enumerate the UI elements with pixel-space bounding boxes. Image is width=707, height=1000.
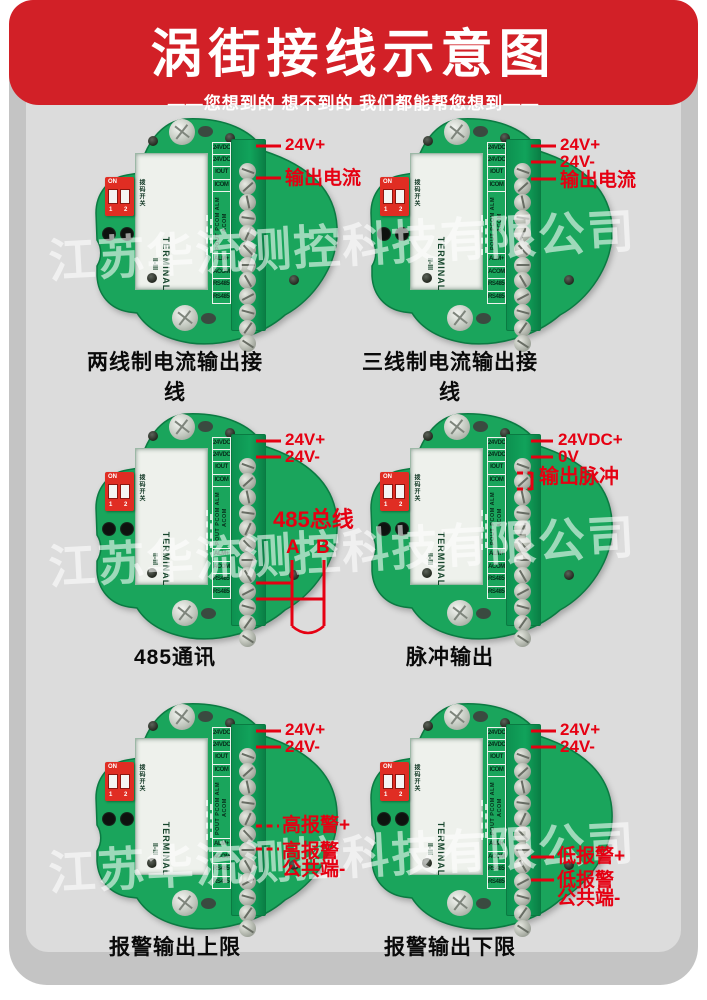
terminal-label: IOUT: [212, 167, 231, 180]
board-hole: [564, 275, 574, 285]
dip-on-label: ON: [383, 474, 392, 480]
terminal-label: ALM+: [487, 839, 506, 852]
dip-switch: ON 1 2: [380, 762, 409, 801]
solder-pad: [473, 711, 488, 722]
wire-label: A: [286, 538, 300, 557]
mounting-screw: [444, 119, 470, 145]
terminal-screw: [239, 505, 256, 522]
terminal-label: RS485+: [212, 864, 231, 877]
terminal-screw: [514, 842, 531, 859]
terminal-label: 24VDC+: [487, 437, 506, 450]
terminal-label: 24VDC+: [212, 727, 231, 740]
terminal-label-rotated: POUT PCOM ALM ACOM: [487, 777, 506, 839]
diagram-caption: 报警输出上限: [80, 931, 270, 961]
board-hole: [120, 522, 134, 536]
terminal-screw: [239, 567, 256, 584]
terminal-label: ICOM: [212, 765, 231, 778]
terminal-screw: [239, 905, 256, 922]
board-hole: [289, 275, 299, 285]
diagram-caption: 485通讯: [80, 641, 270, 671]
terminal-silkscreen: TERMINAL II-III: [149, 514, 171, 604]
dip-slider: [108, 189, 118, 204]
terminal-label: ALM+: [212, 839, 231, 852]
terminal-label-rotated: POUT PCOM ALM ACOM: [212, 192, 231, 254]
board-hole: [377, 227, 391, 241]
terminal-screw: [239, 795, 256, 812]
terminal-label: IOUT: [487, 752, 506, 765]
mounting-screw: [447, 600, 473, 626]
terminal-label: ICOM: [487, 180, 506, 193]
board-hole: [564, 570, 574, 580]
terminal-label: 24VDC-: [487, 155, 506, 168]
terminal-silkscreen: TERMINAL II-III: [149, 219, 171, 309]
solder-pad: [476, 898, 491, 909]
terminal-screw: [514, 241, 531, 258]
mounting-screw: [447, 305, 473, 331]
solder-pad: [473, 421, 488, 432]
board-hole: [289, 570, 299, 580]
terminal-screw: [239, 810, 256, 827]
terminal-screw: [239, 889, 256, 906]
dip-on-label: ON: [108, 474, 117, 480]
terminal-screw: [514, 320, 531, 337]
terminal-screw: [239, 599, 256, 616]
terminal-label: IOUT: [212, 462, 231, 475]
wire-label: 低报警+: [557, 847, 625, 866]
terminal-label-rotated: POUT PCOM ALM ACOM: [487, 487, 506, 549]
dip-slider: [120, 774, 130, 789]
terminal-label: RS485-: [487, 292, 506, 305]
page-subtitle: ——您想到的 想不到的 我们都能帮您想到——: [9, 89, 698, 114]
terminal-screw: [239, 241, 256, 258]
terminal-label: RS485+: [212, 574, 231, 587]
terminal-screw: [514, 826, 531, 843]
dip-numbers: 1 2: [109, 502, 132, 508]
wire-label: 24V+: [285, 431, 325, 448]
wire-label: 24V-: [560, 153, 595, 170]
terminal-screw: [514, 552, 531, 569]
terminal-label: ACOM: [487, 852, 506, 865]
terminal-screw: [514, 225, 531, 242]
terminal-screw: [514, 763, 531, 780]
dip-slider: [395, 189, 405, 204]
dip-switch: ON 1 2: [380, 177, 409, 216]
wire-label: 24V+: [560, 721, 600, 738]
wire-label: 输出电流: [560, 171, 636, 190]
terminal-label: 24VDC+: [212, 142, 231, 155]
terminal-label: RS485+: [487, 574, 506, 587]
diagram-caption: 脉冲输出: [355, 641, 545, 671]
terminal-screw: [514, 873, 531, 890]
terminal-label: ICOM: [212, 180, 231, 193]
terminal-screw: [514, 194, 531, 211]
wiring-diagram-card: ON 1 2 拨码开关 TERMINAL II-III 24VDC+ 24VDC…: [85, 115, 385, 383]
terminal-screw: [239, 748, 256, 765]
wire-label: 0V: [558, 448, 579, 465]
terminal-label: 24VDC-: [212, 155, 231, 168]
solder-pad: [201, 313, 216, 324]
wire-label: 高报警+: [282, 816, 350, 835]
diagram-caption: 两线制电流输出接线: [80, 346, 270, 406]
terminal-screw: [239, 257, 256, 274]
terminal-screw: [239, 473, 256, 490]
dip-numbers: 1 2: [384, 502, 407, 508]
title-banner: 涡街接线示意图 ——您想到的 想不到的 我们都能帮您想到——: [9, 0, 698, 105]
terminal-label: ACOM: [487, 267, 506, 280]
terminal-label: IOUT: [487, 167, 506, 180]
wire-label: 输出脉冲: [539, 467, 619, 487]
terminal-screw: [514, 536, 531, 553]
mounting-screw: [172, 305, 198, 331]
dip-numbers: 1 2: [109, 792, 132, 798]
dip-side-label: 拨码开关: [412, 764, 421, 792]
terminal-label-rotated: POUT PCOM ALM ACOM: [212, 487, 231, 549]
lcd-window: [410, 448, 483, 585]
terminal-screw: [239, 288, 256, 305]
terminal-screw: [239, 210, 256, 227]
terminal-label: ACOM: [212, 562, 231, 575]
mounting-screw: [172, 600, 198, 626]
terminal-screw: [239, 842, 256, 859]
terminal-label: 24VDC+: [212, 437, 231, 450]
solder-pad: [198, 711, 213, 722]
solder-pad: [476, 608, 491, 619]
terminal-label-column: 24VDC+ 24VDC- IOUT ICOM POUT PCOM ALM AC…: [487, 142, 506, 304]
wiring-diagram-card: ON 1 2 拨码开关 TERMINAL II-III 24VDC+ 24VDC…: [85, 410, 385, 678]
terminal-silkscreen: TERMINAL II-III: [149, 804, 171, 894]
solder-pad: [198, 126, 213, 137]
terminal-label-column: 24VDC+ 24VDC- IOUT ICOM POUT PCOM ALM AC…: [487, 437, 506, 599]
solder-pad: [473, 126, 488, 137]
terminal-label: RS485-: [212, 292, 231, 305]
terminal-screw: [514, 458, 531, 475]
terminal-screw: [514, 748, 531, 765]
terminal-screw: [514, 795, 531, 812]
wire-label: 24V-: [285, 448, 320, 465]
dip-on-label: ON: [383, 764, 392, 770]
component-silkscreen: [210, 804, 212, 838]
terminal-screw: [514, 163, 531, 180]
wire-label: 输出电流: [285, 169, 361, 188]
terminal-label: ACOM: [212, 267, 231, 280]
wiring-diagram-card: ON 1 2 拨码开关 TERMINAL II-III 24VDC+ 24VDC…: [360, 115, 660, 383]
dip-side-label: 拨码开关: [137, 764, 146, 792]
terminal-label-rotated: POUT PCOM ALM ACOM: [212, 777, 231, 839]
diagram-caption: 报警输出下限: [355, 931, 545, 961]
terminal-label: ALM+: [487, 254, 506, 267]
terminal-label: RS485-: [487, 587, 506, 600]
board-hole: [377, 812, 391, 826]
lcd-window: [410, 153, 483, 290]
terminal-label: RS485-: [487, 877, 506, 890]
wire-label: 24V+: [560, 136, 600, 153]
solder-pad: [201, 898, 216, 909]
terminal-screw: [239, 536, 256, 553]
solder-pad: [201, 608, 216, 619]
terminal-screw: [239, 826, 256, 843]
terminal-silkscreen: TERMINAL II-III: [424, 804, 446, 894]
terminal-screw: [514, 505, 531, 522]
terminal-label: 24VDC-: [487, 450, 506, 463]
terminal-screw: [239, 458, 256, 475]
wire-label: 485总线: [273, 509, 354, 531]
terminal-label: 24VDC-: [212, 450, 231, 463]
terminal-screw: [514, 288, 531, 305]
terminal-label: ICOM: [487, 475, 506, 488]
wiring-diagram-card: ON 1 2 拨码开关 TERMINAL II-III 24VDC+ 24VDC…: [360, 700, 660, 968]
board-hole: [120, 812, 134, 826]
terminal-label: ACOM: [487, 562, 506, 575]
component-silkscreen: [485, 219, 487, 253]
terminal-screw: [239, 779, 256, 796]
terminal-screw: [514, 272, 531, 289]
dip-numbers: 1 2: [384, 207, 407, 213]
terminal-screw: [239, 194, 256, 211]
terminal-screw: [239, 763, 256, 780]
terminal-label: ALM+: [212, 549, 231, 562]
dip-switch: ON 1 2: [380, 472, 409, 511]
terminal-label: 24VDC+: [487, 727, 506, 740]
terminal-screw: [239, 615, 256, 632]
board-hole: [120, 227, 134, 241]
terminal-screw: [514, 567, 531, 584]
component-silkscreen: [210, 514, 212, 548]
wire-label: 24V+: [285, 721, 325, 738]
terminal-label: 24VDC-: [212, 740, 231, 753]
dip-switch: ON 1 2: [105, 472, 134, 511]
terminal-screw: [514, 857, 531, 874]
board-hole: [148, 431, 158, 441]
dip-side-label: 拨码开关: [137, 474, 146, 502]
wire-label: 24VDC+: [558, 431, 623, 448]
terminal-screw: [514, 810, 531, 827]
wiring-diagram-card: ON 1 2 拨码开关 TERMINAL II-III 24VDC+ 24VDC…: [85, 700, 385, 968]
terminal-screw: [514, 304, 531, 321]
terminal-strip: [506, 139, 541, 331]
component-silkscreen: [481, 800, 483, 840]
terminal-screw: [239, 857, 256, 874]
terminal-screw: [514, 599, 531, 616]
dip-on-label: ON: [108, 179, 117, 185]
dip-slider: [383, 189, 393, 204]
board-hole: [423, 721, 433, 731]
terminal-label-column: 24VDC+ 24VDC- IOUT ICOM POUT PCOM ALM AC…: [212, 727, 231, 889]
terminal-screw: [239, 320, 256, 337]
wire-label: 公共端-: [282, 860, 345, 879]
board-hole: [395, 812, 409, 826]
terminal-label: ALM+: [212, 254, 231, 267]
component-silkscreen: [206, 215, 208, 255]
terminal-screw: [239, 489, 256, 506]
dip-slider: [383, 484, 393, 499]
board-hole: [423, 431, 433, 441]
terminal-label: ICOM: [212, 475, 231, 488]
terminal-label: IOUT: [212, 752, 231, 765]
component-silkscreen: [485, 514, 487, 548]
lcd-window: [135, 153, 208, 290]
board-hole: [148, 136, 158, 146]
dip-side-label: 拨码开关: [137, 179, 146, 207]
wiring-diagram-card: ON 1 2 拨码开关 TERMINAL II-III 24VDC+ 24VDC…: [360, 410, 660, 678]
mounting-screw: [169, 704, 195, 730]
board-hole: [102, 812, 116, 826]
terminal-screw: [239, 163, 256, 180]
terminal-label: ALM+: [487, 549, 506, 562]
terminal-screw: [514, 257, 531, 274]
terminal-label-column: 24VDC+ 24VDC- IOUT ICOM POUT PCOM ALM AC…: [212, 142, 231, 304]
board-hole: [395, 227, 409, 241]
board-hole: [423, 136, 433, 146]
terminal-screw: [514, 889, 531, 906]
lcd-window: [135, 448, 208, 585]
component-silkscreen: [210, 219, 212, 253]
dip-slider: [395, 484, 405, 499]
terminal-strip: [506, 724, 541, 916]
wire-label: 24V-: [560, 738, 595, 755]
wire-label: B: [316, 538, 330, 557]
terminal-screw: [514, 615, 531, 632]
terminal-screw: [514, 779, 531, 796]
terminal-label: RS485-: [212, 587, 231, 600]
component-silkscreen: [481, 215, 483, 255]
wire-label: 24V+: [285, 136, 325, 153]
dip-on-label: ON: [108, 764, 117, 770]
dip-slider: [383, 774, 393, 789]
component-silkscreen: [481, 510, 483, 550]
terminal-screw: [239, 873, 256, 890]
component-silkscreen: [206, 800, 208, 840]
terminal-label: IOUT: [487, 462, 506, 475]
terminal-screw: [514, 905, 531, 922]
mounting-screw: [169, 119, 195, 145]
mounting-screw: [444, 704, 470, 730]
dip-side-label: 拨码开关: [412, 179, 421, 207]
solder-pad: [198, 421, 213, 432]
board-hole: [377, 522, 391, 536]
terminal-screw: [239, 178, 256, 195]
dip-slider: [108, 484, 118, 499]
mounting-screw: [172, 890, 198, 916]
terminal-screw: [514, 178, 531, 195]
terminal-label: ACOM: [212, 852, 231, 865]
board-hole: [395, 522, 409, 536]
terminal-screw: [239, 272, 256, 289]
lcd-window: [410, 738, 483, 875]
page-title: 涡街接线示意图: [9, 12, 698, 87]
terminal-label: RS485+: [487, 864, 506, 877]
terminal-strip: [231, 724, 266, 916]
dip-numbers: 1 2: [384, 792, 407, 798]
solder-pad: [476, 313, 491, 324]
terminal-screw: [514, 583, 531, 600]
lcd-window: [135, 738, 208, 875]
terminal-strip: [231, 434, 266, 626]
terminal-label: ICOM: [487, 765, 506, 778]
terminal-label: RS485+: [212, 279, 231, 292]
dip-slider: [120, 484, 130, 499]
wire-label: 24V-: [285, 738, 320, 755]
dip-switch: ON 1 2: [105, 177, 134, 216]
board-hole: [148, 721, 158, 731]
terminal-label-column: 24VDC+ 24VDC- IOUT ICOM POUT PCOM ALM AC…: [212, 437, 231, 599]
terminal-label-rotated: POUT PCOM ALM ACOM: [487, 192, 506, 254]
terminal-label-column: 24VDC+ 24VDC- IOUT ICOM POUT PCOM ALM AC…: [487, 727, 506, 889]
terminal-screw: [239, 304, 256, 321]
wire-label: 公共端-: [557, 889, 620, 908]
terminal-screw: [239, 552, 256, 569]
component-silkscreen: [485, 804, 487, 838]
dip-slider: [120, 189, 130, 204]
mounting-screw: [447, 890, 473, 916]
terminal-silkscreen: TERMINAL II-III: [424, 219, 446, 309]
board-hole: [102, 522, 116, 536]
component-silkscreen: [206, 510, 208, 550]
terminal-screw: [514, 489, 531, 506]
mounting-screw: [169, 414, 195, 440]
terminal-strip: [231, 139, 266, 331]
terminal-silkscreen: TERMINAL II-III: [424, 514, 446, 604]
terminal-screw: [239, 583, 256, 600]
dip-side-label: 拨码开关: [412, 474, 421, 502]
terminal-label: RS485-: [212, 877, 231, 890]
terminal-label: 24VDC+: [487, 142, 506, 155]
terminal-screw: [239, 520, 256, 537]
dip-on-label: ON: [383, 179, 392, 185]
terminal-label: RS485+: [487, 279, 506, 292]
terminal-screw: [514, 210, 531, 227]
dip-slider: [108, 774, 118, 789]
terminal-strip: [506, 434, 541, 626]
terminal-screw: [514, 473, 531, 490]
terminal-label: 24VDC-: [487, 740, 506, 753]
terminal-screw: [514, 520, 531, 537]
dip-numbers: 1 2: [109, 207, 132, 213]
dip-switch: ON 1 2: [105, 762, 134, 801]
board-hole: [102, 227, 116, 241]
dip-slider: [395, 774, 405, 789]
terminal-screw: [239, 225, 256, 242]
mounting-screw: [444, 414, 470, 440]
diagram-caption: 三线制电流输出接线: [355, 346, 545, 406]
